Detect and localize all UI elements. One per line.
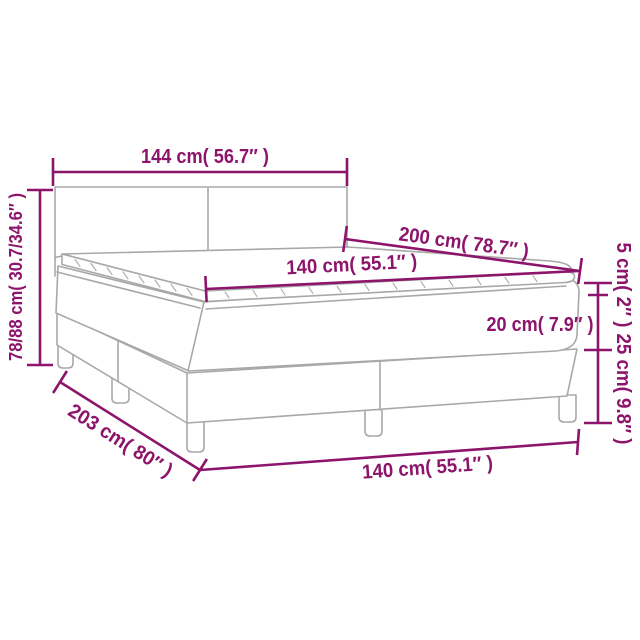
dim-label-box-height: 25 cm( 9.8″ ) xyxy=(612,334,634,445)
dim-label-overall-height: 78/88 cm( 30.7/34.6″ ) xyxy=(5,193,26,361)
bed-leg xyxy=(365,407,382,436)
dim-label-headboard-width: 144 cm( 56.7″ ) xyxy=(141,146,269,168)
dim-label-mattress-height: 20 cm( 7.9″ ) xyxy=(487,314,594,336)
dim-label-base-length: 203 cm( 80″ ) xyxy=(64,400,176,482)
bed-leg xyxy=(187,420,204,452)
dim-line-height-stack xyxy=(584,283,612,423)
bed-leg xyxy=(559,395,576,422)
dimension-diagram: 144 cm( 56.7″ ) 78/88 cm( 30.7/34.6″ ) 2… xyxy=(0,0,640,640)
dim-label-topper-height: 5 cm( 2″ ) xyxy=(612,243,634,328)
dim-line-overall-height xyxy=(27,190,53,365)
headboard xyxy=(55,187,347,258)
